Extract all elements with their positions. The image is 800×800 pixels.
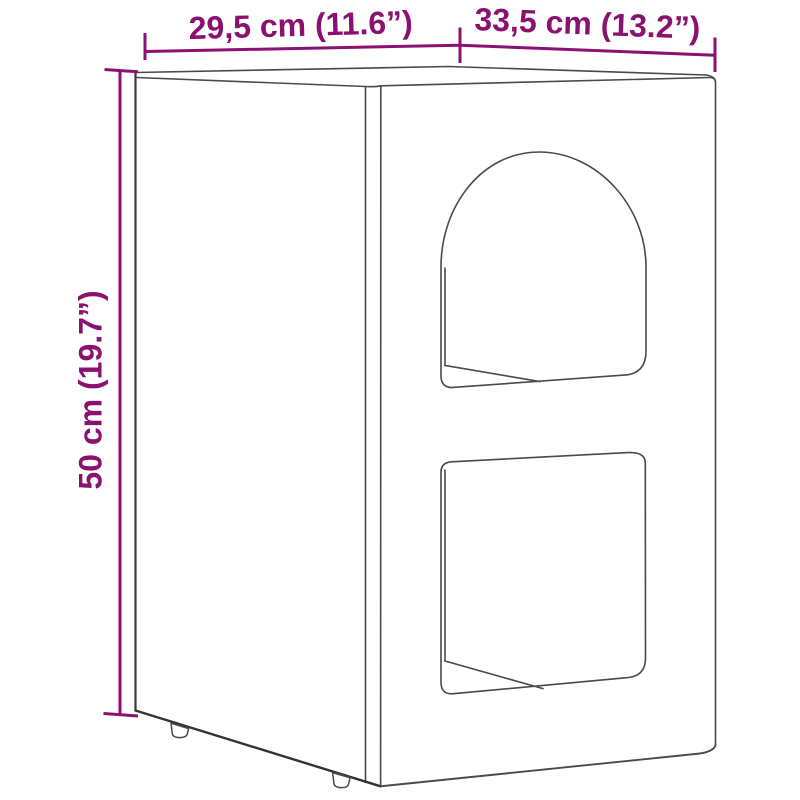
dimension-label-left: 50 cm (19.7”) <box>73 290 109 489</box>
box-front-corner-top-arc <box>366 86 382 87</box>
box-front-face-bottom-edge <box>381 744 716 786</box>
dimension-label-top-right: 33,5 cm (13.2”) <box>474 1 701 46</box>
dimension-lines <box>104 28 716 717</box>
dimension-tick-left-bottom <box>104 714 139 717</box>
box-top-back-edge-and-right-edge <box>136 67 716 745</box>
dimension-label-top-left: 29,5 cm (11.6”) <box>188 4 413 46</box>
square-opening-outline <box>441 453 646 694</box>
arch-opening-bottom-thickness-line <box>445 365 540 381</box>
square-opening-bottom-thickness-line <box>445 661 543 689</box>
dimension-line-top-right <box>460 45 715 55</box>
dimension-labels: 29,5 cm (11.6”) 33,5 cm (13.2”) 50 cm (1… <box>73 1 702 490</box>
diagram-svg: 29,5 cm (11.6”) 33,5 cm (13.2”) 50 cm (1… <box>0 0 800 800</box>
product-drawing <box>136 67 716 788</box>
dimension-tick-left-top <box>105 70 139 72</box>
product-dimension-diagram: 29,5 cm (11.6”) 33,5 cm (13.2”) 50 cm (1… <box>0 0 800 800</box>
box-left-face-top-edge <box>136 78 366 87</box>
box-left-face-bottom-edge <box>136 711 381 787</box>
dimension-line-top-left <box>145 45 460 51</box>
box-front-face-top-edge <box>381 77 716 85</box>
arch-opening-outline <box>441 152 646 388</box>
